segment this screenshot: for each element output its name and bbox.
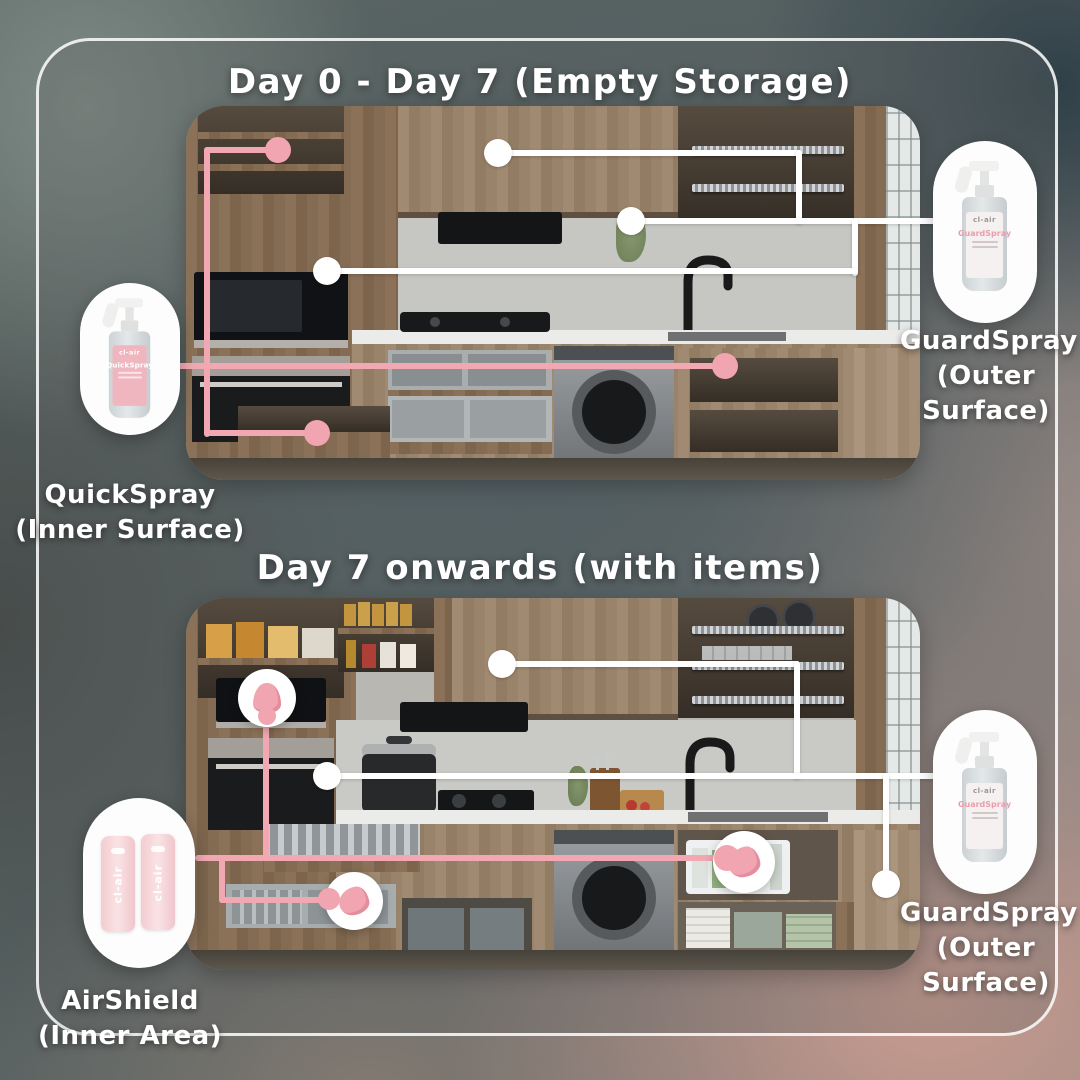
storage-bin	[734, 912, 782, 948]
canister-slot	[111, 848, 125, 854]
washer-door	[572, 856, 656, 940]
bottle-head	[115, 298, 143, 307]
product-name-text: GuardSpray	[958, 800, 1011, 809]
jar	[372, 604, 384, 626]
spray-bottle: cl-air GuardSpray	[955, 161, 1015, 293]
annotation-dot	[318, 888, 340, 910]
annotation-line	[325, 773, 939, 779]
annotation-line	[204, 147, 210, 437]
annotation-line	[629, 218, 939, 224]
quickspray-caption: QuickSpray (Inner Surface)	[10, 478, 250, 548]
product-bottle	[692, 848, 708, 888]
food-box	[362, 644, 376, 668]
range-hood	[400, 702, 528, 732]
guardspray-caption-top: GuardSpray (Outer Surface)	[900, 324, 1072, 429]
oven-panel	[208, 738, 334, 758]
label-line	[972, 817, 998, 819]
kitchen-photo-empty	[186, 106, 920, 480]
guardspray-product-bottom: cl-air GuardSpray	[933, 710, 1037, 894]
annotation-line	[263, 712, 269, 860]
countertop	[352, 330, 920, 344]
brand-text: cl-air	[973, 216, 996, 224]
brand-text: cl-air	[973, 787, 996, 795]
window	[886, 598, 920, 830]
sink	[668, 332, 786, 341]
bottle-collar	[975, 185, 994, 197]
upper-cabinets	[398, 106, 680, 218]
section-title-items: Day 7 onwards (with items)	[0, 548, 1080, 588]
towel-stack	[786, 914, 832, 948]
annotation-line	[496, 150, 802, 156]
glasses	[702, 646, 792, 660]
washer-panel	[554, 346, 674, 360]
jar	[400, 604, 412, 626]
shelf	[198, 164, 344, 171]
bottle-trigger	[954, 165, 974, 195]
kitchen-photo-with-items	[186, 598, 920, 970]
guardspray-product-top: cl-air GuardSpray	[933, 141, 1037, 323]
storage-bin	[408, 908, 464, 950]
annotation-dot	[258, 707, 276, 725]
towel-stack	[686, 908, 730, 948]
burner	[500, 317, 510, 327]
range-hood	[438, 212, 562, 244]
storage-bin	[468, 354, 546, 386]
plinth	[186, 458, 920, 480]
airshield-product: cl-air cl-air	[83, 798, 195, 968]
guardspray-caption-bottom: GuardSpray (Outer Surface)	[900, 896, 1072, 1001]
caption-line: QuickSpray	[10, 478, 250, 513]
window	[886, 106, 920, 348]
open-shelf	[690, 410, 838, 452]
canister-slot	[151, 846, 165, 852]
caption-line: AirShield	[20, 984, 240, 1019]
oven-handle	[200, 382, 342, 387]
plinth	[186, 950, 920, 970]
label-line	[972, 241, 998, 243]
dish-rack	[692, 184, 844, 192]
drawer-front	[226, 928, 396, 950]
annotation-dot	[313, 257, 341, 285]
annotation-line	[195, 855, 729, 861]
bottle-body: cl-air GuardSpray	[962, 768, 1007, 862]
caption-line: GuardSpray	[900, 896, 1072, 931]
storage-bin	[392, 400, 464, 438]
window-grid	[886, 598, 920, 830]
annotation-line	[170, 363, 728, 369]
caption-line: Surface)	[900, 394, 1072, 429]
spray-bottle: cl-air QuickSpray	[102, 298, 157, 419]
caption-line: GuardSpray	[900, 324, 1072, 359]
knife	[606, 754, 609, 770]
label-line	[118, 372, 142, 374]
brand-text: cl-air	[112, 866, 125, 903]
drawer-front	[388, 442, 552, 454]
jar	[344, 604, 356, 626]
microwave-window	[206, 280, 302, 332]
food-bag	[380, 642, 396, 668]
bottle-collar	[975, 756, 994, 768]
product-name-text: QuickSpray	[106, 361, 153, 369]
oven-handle	[216, 764, 326, 769]
annotation-dot	[617, 207, 645, 235]
window-grid	[886, 106, 920, 348]
bottle-trigger	[954, 736, 974, 766]
food-box	[268, 626, 298, 658]
burner	[452, 794, 466, 808]
food-box	[302, 628, 334, 658]
spray-bottle: cl-air GuardSpray	[955, 732, 1015, 864]
bottle-collar	[121, 320, 138, 331]
caption-line: (Outer	[900, 931, 1072, 966]
product-name-text: GuardSpray	[958, 229, 1011, 238]
bottle-stem	[125, 307, 133, 320]
caption-line: (Inner Surface)	[10, 513, 250, 548]
bottle-head	[969, 161, 999, 171]
section-title-empty: Day 0 - Day 7 (Empty Storage)	[0, 62, 1080, 102]
bottle-label: cl-air GuardSpray	[966, 212, 1003, 278]
annotation-line	[796, 150, 802, 224]
food-box	[236, 622, 264, 658]
jar	[358, 602, 370, 626]
pressure-cooker	[362, 754, 436, 812]
sink	[688, 812, 828, 822]
quickspray-product: cl-air QuickSpray	[80, 283, 180, 435]
bottle-trigger	[101, 302, 119, 329]
annotation-dot	[265, 137, 291, 163]
annotation-dot	[714, 845, 740, 871]
dish-rack	[692, 626, 844, 634]
cooker-handle	[386, 736, 412, 744]
storage-bin	[392, 354, 462, 386]
annotation-line	[219, 855, 225, 903]
countertop	[336, 810, 920, 824]
airshield-canister: cl-air	[141, 834, 175, 930]
bottle-head	[969, 732, 999, 742]
drawer-front	[836, 902, 854, 950]
food-bag	[400, 644, 416, 668]
washer-door	[572, 370, 656, 454]
washer-panel	[554, 830, 674, 844]
shelf	[338, 628, 434, 634]
microwave-base	[194, 340, 348, 348]
annotation-dot	[872, 870, 900, 898]
label-line	[972, 246, 998, 248]
shelf	[198, 658, 344, 665]
annotation-dot	[313, 762, 341, 790]
caption-line: (Outer	[900, 359, 1072, 394]
food-box	[206, 624, 232, 658]
bottle-body: cl-air QuickSpray	[109, 331, 150, 417]
bottle-stem	[980, 171, 989, 185]
burner	[430, 317, 440, 327]
annotation-dot	[488, 650, 516, 678]
label-line	[972, 812, 998, 814]
annotation-dot	[712, 353, 738, 379]
airshield-caption: AirShield (Inner Area)	[20, 984, 240, 1054]
drawer-front	[264, 860, 420, 872]
bottle-label: cl-air QuickSpray	[113, 345, 147, 406]
knife	[596, 756, 599, 770]
caption-line: Surface)	[900, 966, 1072, 1001]
faucet-icon	[678, 246, 736, 334]
storage-bin	[232, 890, 302, 924]
brand-text: cl-air	[152, 864, 165, 901]
cooktop	[400, 312, 550, 332]
annotation-dot	[304, 420, 330, 446]
annotation-line	[219, 897, 331, 903]
sachet-icon	[337, 885, 371, 918]
bottle-label: cl-air GuardSpray	[966, 783, 1003, 849]
jar	[386, 602, 398, 626]
bottle-stem	[980, 742, 989, 756]
dish-rack	[692, 696, 844, 704]
oil-bottle	[346, 640, 356, 668]
airshield-canister: cl-air	[101, 836, 135, 932]
annotation-dot	[484, 139, 512, 167]
storage-bin	[470, 400, 546, 438]
annotation-line	[500, 661, 800, 667]
caption-line: (Inner Area)	[20, 1019, 240, 1054]
faucet-icon	[680, 728, 738, 816]
brand-text: cl-air	[119, 349, 140, 356]
wood-column	[854, 106, 888, 348]
infographic-canvas: Day 0 - Day 7 (Empty Storage) Day 7 onwa…	[0, 0, 1080, 1080]
annotation-line	[794, 661, 800, 779]
burner	[492, 794, 506, 808]
annotation-line	[883, 773, 889, 885]
annotation-line	[325, 268, 858, 274]
open-cabinet-interior	[678, 106, 858, 226]
storage-bin	[470, 908, 524, 950]
bottle-body: cl-air GuardSpray	[962, 197, 1007, 291]
label-line	[118, 376, 142, 378]
